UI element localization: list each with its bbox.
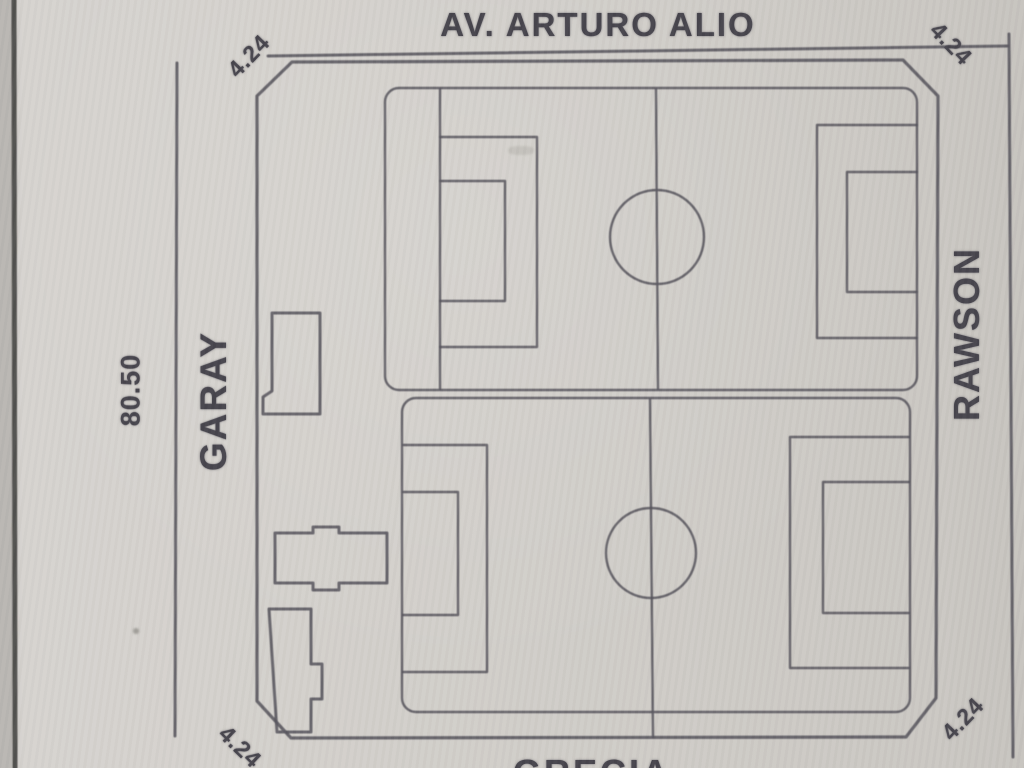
building-outlines	[263, 313, 387, 732]
street-label-rawson: RAWSON	[946, 247, 988, 421]
field-top-goal-box-right	[847, 172, 917, 292]
field-top-penalty-box-left	[440, 137, 537, 347]
field-top-penalty-box-right	[817, 125, 917, 338]
street-label-garay: GARAY	[193, 331, 235, 471]
field-bottom-goal-box-left	[403, 492, 458, 615]
street-label-grecia: GRECIA	[513, 752, 671, 768]
building-middle	[275, 527, 387, 590]
scan-smudge	[508, 146, 534, 155]
street-line-garay	[175, 63, 177, 736]
dimension-label-left: 80.50	[116, 354, 147, 427]
building-lower	[269, 609, 322, 732]
street-line-avenue	[268, 46, 1008, 56]
plan-drawing	[0, 0, 1024, 768]
street-line-rawson	[1009, 34, 1013, 757]
field-bottom-goal-box-right	[823, 482, 909, 613]
field-bottom-penalty-box-left	[403, 445, 487, 672]
building-upper	[263, 313, 320, 414]
soccer-field-bottom	[402, 398, 910, 737]
soccer-field-top	[385, 88, 917, 390]
site-plan-sheet: AV. ARTURO ALIO 80.50 GARAY RAWSON GRECI…	[0, 0, 1024, 768]
street-label-avenue: AV. ARTURO ALIO	[440, 6, 755, 44]
field-top-outline	[385, 88, 917, 390]
field-top-halfway-line	[656, 89, 658, 389]
field-top-goal-box-left	[440, 181, 505, 301]
field-bottom-halfway-line	[650, 399, 653, 737]
field-bottom-penalty-box-right	[790, 437, 909, 668]
scan-speck	[133, 628, 139, 634]
paper-edge-line	[14, 0, 15, 768]
